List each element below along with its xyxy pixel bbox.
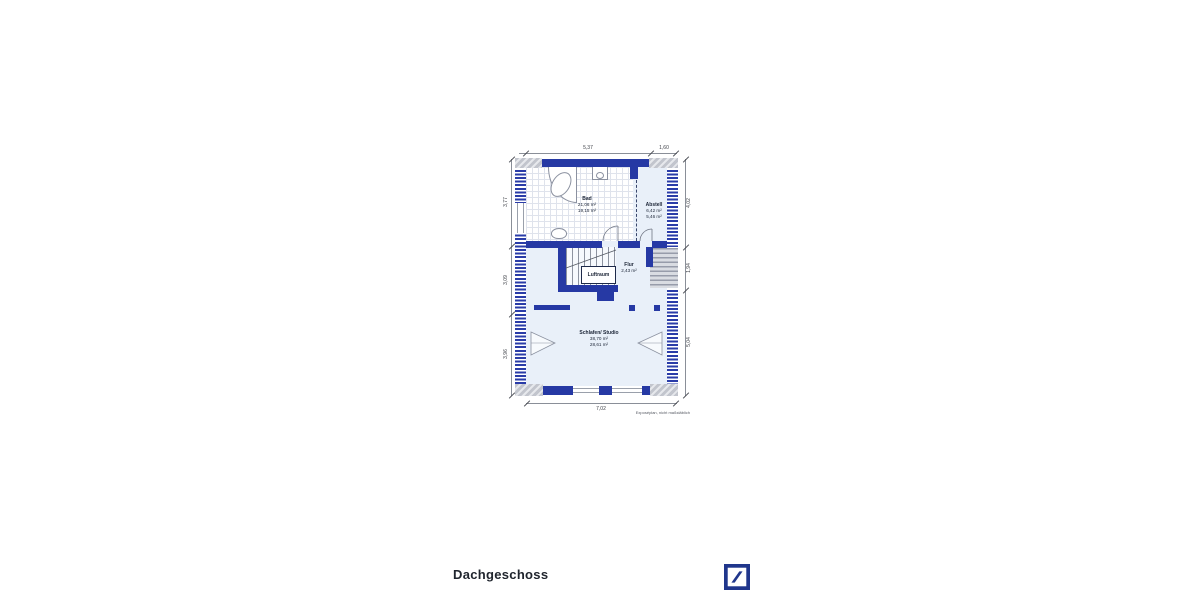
dim-bottom: 7,02: [596, 406, 606, 412]
dim-line-top: [519, 153, 677, 154]
bad-area-total: 21,06 m²: [578, 202, 596, 208]
schlafen-label: Schlafen/ Studio 38,70 m² 28,61 m²: [579, 330, 618, 347]
dim-left-2: 3,09: [503, 275, 509, 285]
dim-right-2: 1,94: [686, 263, 692, 273]
dim-top-1: 5,37: [583, 145, 593, 151]
bad-door: [603, 226, 618, 241]
dim-left-1: 3,77: [503, 197, 509, 207]
abstell-label: Abstell 6,42 m² 5,46 m²: [646, 202, 663, 219]
dim-right-1: 4,02: [686, 198, 692, 208]
page: Luftraum Bad 21,06 m²: [0, 0, 1200, 600]
dim-line-bottom: [526, 403, 677, 404]
tick: [673, 400, 679, 406]
abstell-area-total: 6,42 m²: [646, 208, 663, 214]
dim-line-right: [685, 159, 686, 396]
roof-window-right: [638, 332, 662, 355]
deutsche-bank-logo: [724, 564, 750, 590]
deutsche-bank-logo-svg: [724, 564, 750, 590]
dim-left-3: 3,96: [503, 349, 509, 359]
plan-overlay: [515, 155, 690, 400]
flur-area: 2,43 m²: [621, 268, 637, 274]
flur-label: Flur 2,43 m²: [621, 262, 637, 274]
dim-line-left: [511, 159, 512, 396]
schlafen-area-living: 28,61 m²: [579, 342, 618, 348]
abstell-area-living: 5,46 m²: [646, 214, 663, 220]
floor-title: Dachgeschoss: [453, 567, 548, 582]
bad-label: Bad 21,06 m² 19,15 m²: [578, 196, 596, 213]
bad-area-living: 19,15 m²: [578, 208, 596, 214]
abstell-door: [640, 229, 652, 241]
dim-top-2: 1,60: [659, 145, 669, 151]
plan-footnote: Exposéplan, nicht maßstäblich: [628, 410, 690, 415]
stair-cut-line: [566, 250, 616, 268]
floorplan: Luftraum Bad 21,06 m²: [0, 0, 1200, 600]
roof-window-left: [531, 332, 555, 355]
dim-right-3: 5,04: [686, 337, 692, 347]
